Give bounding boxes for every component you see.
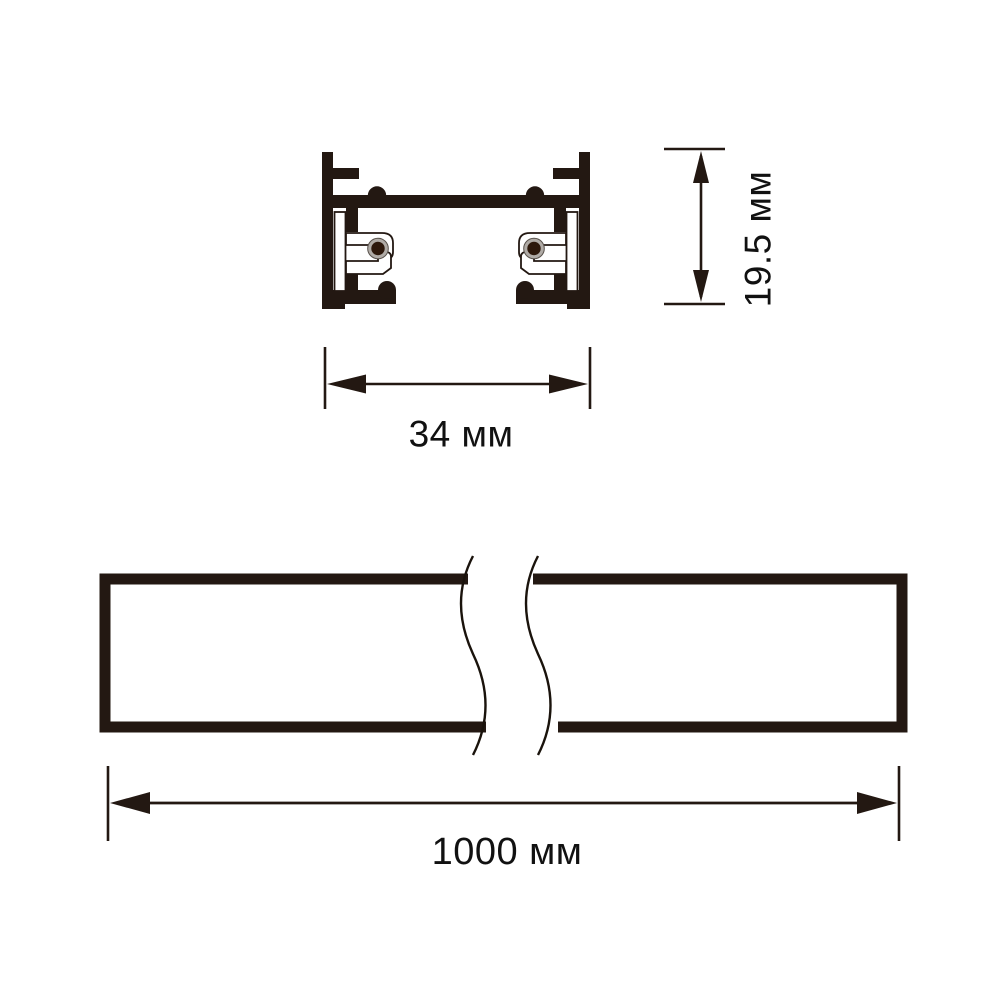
height-dim-arrowhead-up (693, 151, 709, 183)
cross-section-right-half (456, 152, 591, 309)
width-dimension-label: 34 мм (409, 416, 514, 453)
length-dimension-label: 1000 мм (432, 833, 583, 871)
width-dim-arrowhead-right (549, 375, 588, 394)
length-rect-left-part (105, 579, 486, 727)
length-dimension-arrow (108, 766, 899, 841)
height-dim-arrowhead-down (693, 270, 709, 302)
break-line-right (526, 556, 551, 755)
width-dim-arrowhead-left (327, 375, 366, 394)
width-dimension-arrow (325, 347, 590, 409)
technical-drawing: 19.5 мм 34 мм 1000 мм (0, 0, 1000, 1000)
cross-section-left-half (322, 152, 457, 309)
cross-section-profile (322, 152, 590, 309)
length-rectangle (105, 556, 902, 755)
length-dim-arrowhead-left (110, 792, 150, 814)
length-rect-right-part (533, 579, 902, 727)
height-dimension-arrow (664, 149, 725, 304)
height-dimension-label: 19.5 мм (740, 171, 777, 308)
length-dim-arrowhead-right (857, 792, 897, 814)
